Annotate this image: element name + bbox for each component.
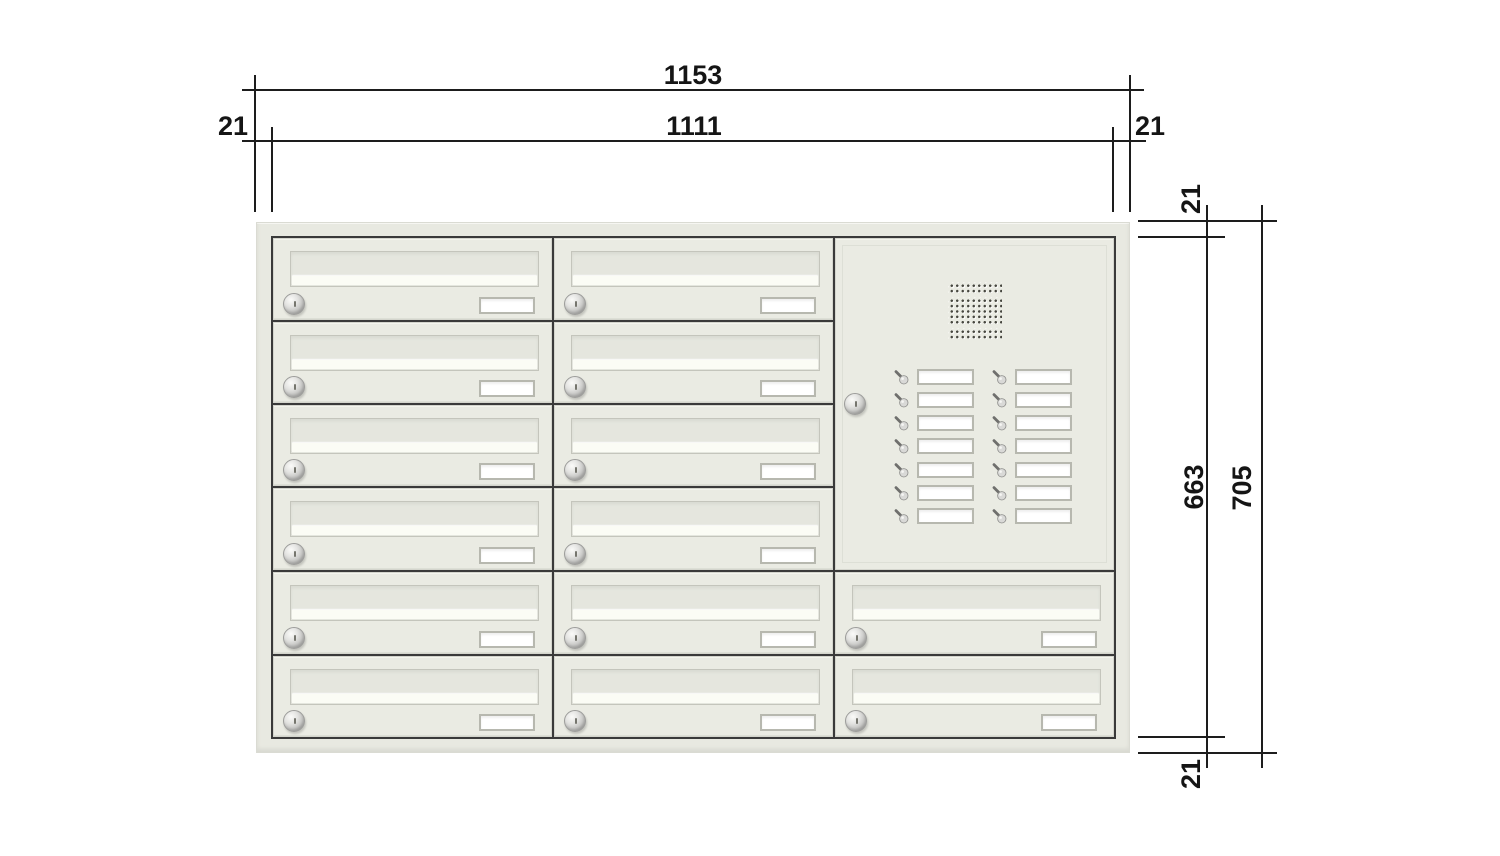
dimension-label-margin-left: 21 (198, 111, 248, 141)
name-plate (760, 297, 816, 314)
bell-name-plate (917, 392, 974, 408)
speaker-dot-rows (948, 282, 1002, 293)
bell-row (893, 369, 1073, 385)
dimension-label-margin-bottom: 21 (1176, 739, 1206, 809)
bell-button-icon (991, 415, 1007, 431)
lock-knob-icon (283, 293, 305, 315)
letter-flap (571, 335, 820, 371)
bell-button-icon (893, 438, 909, 454)
bell-unit (991, 485, 1072, 501)
speaker-grille-icon (948, 282, 1002, 343)
lock-knob-icon (283, 376, 305, 398)
lock-knob-icon (564, 459, 586, 481)
bell-button-grid (893, 369, 1073, 524)
bell-unit (991, 392, 1072, 408)
bell-button-icon (991, 438, 1007, 454)
bell-button-icon (893, 415, 909, 431)
bell-unit (893, 438, 974, 454)
bell-unit (991, 369, 1072, 385)
mailbox-door (835, 656, 1114, 737)
lock-knob-icon (283, 710, 305, 732)
bell-unit (893, 415, 974, 431)
name-plate (479, 380, 535, 397)
dimension-label-margin-top: 21 (1176, 164, 1206, 234)
cabinet-outer-panel (256, 222, 1130, 753)
lock-knob-icon (564, 293, 586, 315)
letter-flap (852, 585, 1101, 621)
letter-flap (571, 585, 820, 621)
lock-knob-icon (564, 543, 586, 565)
bell-button-icon (991, 508, 1007, 524)
letter-flap (290, 418, 539, 454)
letter-flap (852, 669, 1101, 705)
mailbox-door (554, 405, 833, 486)
letter-flap (290, 251, 539, 287)
bell-unit (991, 438, 1072, 454)
letter-flap (290, 585, 539, 621)
extension-line-inner-bottom (1138, 736, 1225, 738)
lock-knob-icon (283, 627, 305, 649)
letter-flap (571, 418, 820, 454)
mailbox-door (273, 572, 552, 654)
extension-line-outer-top (1138, 220, 1277, 222)
speaker-dot-rows (948, 328, 1002, 339)
technical-drawing-mailbox-bank: 1153 1111 21 21 21 663 705 21 (0, 0, 1500, 856)
mailbox-door (273, 488, 552, 570)
extension-line-outer-left (254, 75, 256, 212)
extension-line-inner-left (271, 127, 273, 212)
mailbox-door (273, 238, 552, 320)
lock-knob-icon (845, 710, 867, 732)
bell-row (893, 438, 1073, 454)
dimension-label-overall-width: 1153 (593, 60, 793, 90)
bell-name-plate (917, 415, 974, 431)
mailbox-door (273, 322, 552, 403)
bell-row (893, 415, 1073, 431)
dimension-label-overall-height: 705 (1227, 453, 1257, 523)
bell-unit (893, 485, 974, 501)
lock-knob-icon (564, 376, 586, 398)
bell-row (893, 485, 1073, 501)
mailbox-door (554, 238, 833, 320)
bell-name-plate (1015, 415, 1072, 431)
extension-line-inner-top (1138, 236, 1225, 238)
bell-button-icon (893, 462, 909, 478)
name-plate (479, 297, 535, 314)
bell-button-icon (893, 392, 909, 408)
bell-button-icon (991, 392, 1007, 408)
bell-unit (893, 508, 974, 524)
bell-name-plate (1015, 508, 1072, 524)
intercom-lock-knob (844, 393, 866, 415)
lock-knob-icon (564, 710, 586, 732)
mailbox-door (835, 572, 1114, 654)
name-plate (760, 463, 816, 480)
letter-flap (290, 501, 539, 537)
bell-unit (893, 392, 974, 408)
bell-unit (893, 462, 974, 478)
name-plate (479, 463, 535, 480)
bell-name-plate (917, 438, 974, 454)
letter-flap (571, 251, 820, 287)
name-plate (760, 380, 816, 397)
bell-button-icon (893, 485, 909, 501)
intercom-panel (835, 238, 1114, 570)
extension-line-inner-right (1112, 127, 1114, 212)
name-plate (479, 631, 535, 648)
bell-name-plate (1015, 392, 1072, 408)
mailbox-door (554, 656, 833, 737)
name-plate (760, 547, 816, 564)
dimension-label-inner-height: 663 (1179, 452, 1209, 522)
mailbox-door (273, 405, 552, 486)
bell-name-plate (917, 462, 974, 478)
mailbox-door (554, 322, 833, 403)
bell-button-icon (991, 369, 1007, 385)
mailbox-door (273, 656, 552, 737)
name-plate (479, 547, 535, 564)
bell-unit (991, 462, 1072, 478)
bell-name-plate (1015, 462, 1072, 478)
bell-unit (893, 369, 974, 385)
extension-line-outer-bottom (1138, 752, 1277, 754)
bell-name-plate (1015, 369, 1072, 385)
bell-name-plate (1015, 485, 1072, 501)
bell-name-plate (917, 369, 974, 385)
bell-unit (991, 508, 1072, 524)
dimension-line-overall-height (1261, 205, 1263, 768)
name-plate (760, 714, 816, 731)
bell-row (893, 392, 1073, 408)
lock-knob-icon (283, 459, 305, 481)
speaker-dot-rows (948, 297, 1002, 324)
bell-button-icon (991, 485, 1007, 501)
lock-knob-icon (564, 627, 586, 649)
bell-name-plate (917, 508, 974, 524)
extension-line-outer-right (1129, 75, 1131, 212)
bell-row (893, 508, 1073, 524)
name-plate (1041, 631, 1097, 648)
letter-flap (571, 501, 820, 537)
dimension-label-inner-width: 1111 (594, 111, 794, 141)
letter-flap (290, 335, 539, 371)
bell-row (893, 462, 1073, 478)
letter-flap (571, 669, 820, 705)
mailbox-door (554, 572, 833, 654)
bell-unit (991, 415, 1072, 431)
bell-name-plate (917, 485, 974, 501)
name-plate (479, 714, 535, 731)
lock-knob-icon (283, 543, 305, 565)
lock-knob-icon (845, 627, 867, 649)
bell-button-icon (893, 369, 909, 385)
bell-button-icon (893, 508, 909, 524)
bell-button-icon (991, 462, 1007, 478)
mailbox-door (554, 488, 833, 570)
name-plate (1041, 714, 1097, 731)
letter-flap (290, 669, 539, 705)
name-plate (760, 631, 816, 648)
dimension-label-margin-right: 21 (1135, 111, 1185, 141)
bell-name-plate (1015, 438, 1072, 454)
